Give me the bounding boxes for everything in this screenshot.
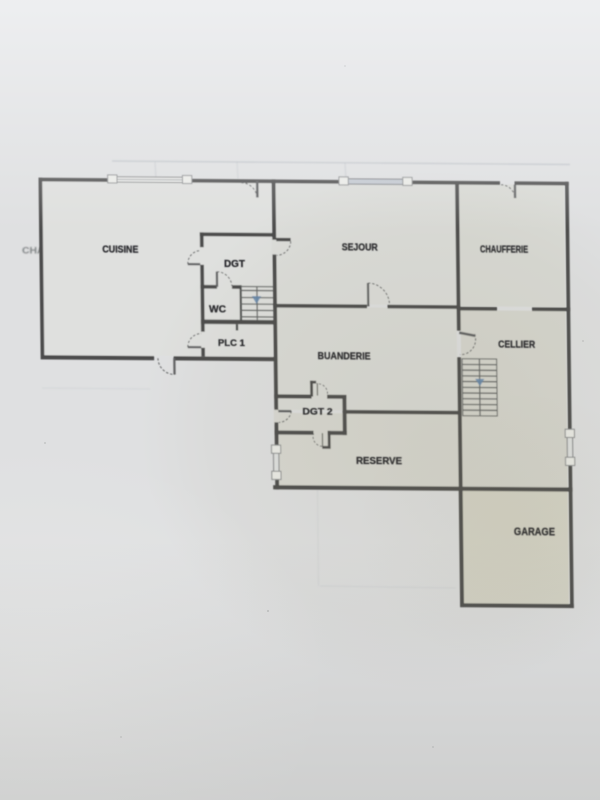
svg-text:CUISINE: CUISINE [102, 244, 138, 255]
